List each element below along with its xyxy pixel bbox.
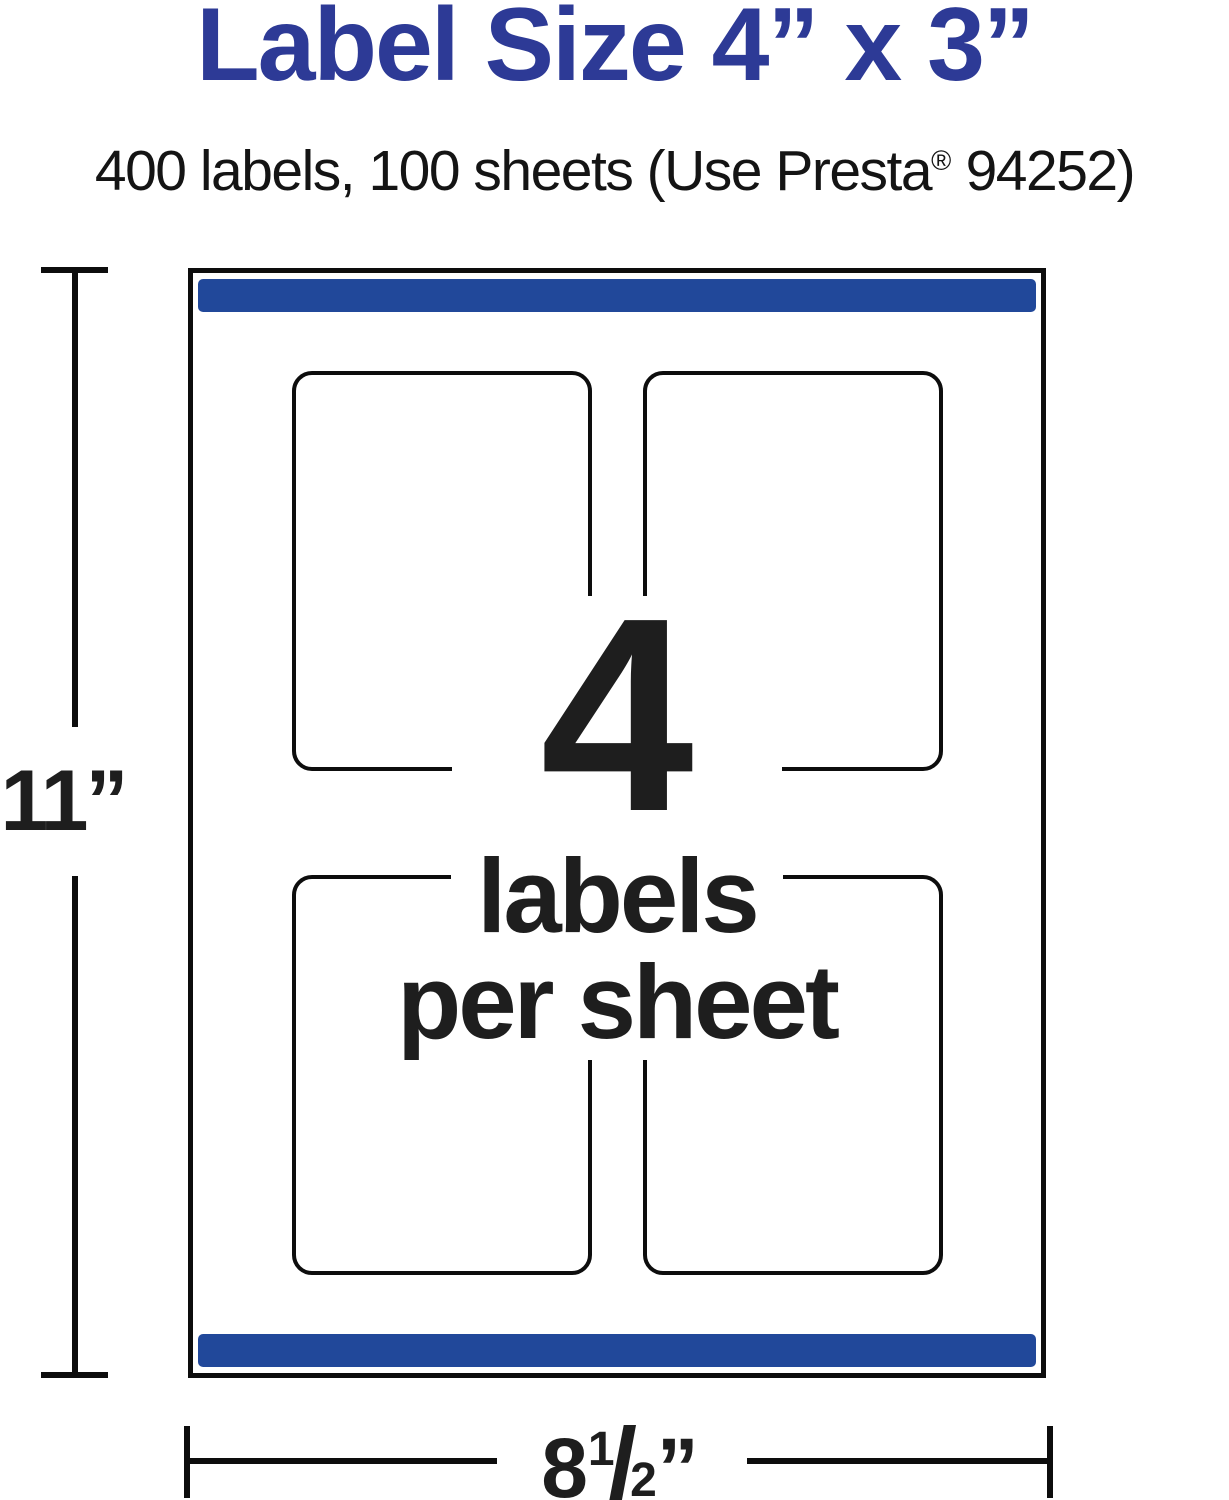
page-title: Label Size 4” x 3” [0, 0, 1229, 100]
labels-count: 4 [452, 596, 782, 834]
width-dim-right-cap [1047, 1426, 1053, 1498]
registered-trademark-symbol: ® [931, 145, 951, 176]
subtitle-sku: 94252) [951, 139, 1134, 203]
width-fraction-denominator: 2 [630, 1454, 657, 1500]
per-sheet-words: per sheet [379, 946, 855, 1060]
width-dim-line-left [187, 1458, 497, 1464]
height-dim-label: 11” [0, 758, 126, 844]
height-dim-bottom-cap [41, 1372, 108, 1378]
height-dim-line-lower [72, 876, 78, 1378]
per-sheet-line: per sheet [188, 946, 1046, 1060]
labels-count-line: 4 [188, 596, 1046, 834]
width-whole-number: 8 [541, 1421, 588, 1500]
subtitle-text: 400 labels, 100 sheets (Use Presta [95, 139, 931, 203]
label-sheet-diagram: Label Size 4” x 3” 400 labels, 100 sheet… [0, 0, 1229, 1500]
labels-word: labels [451, 848, 783, 946]
bottom-accent-bar [198, 1334, 1036, 1367]
height-dim-line-upper [72, 267, 78, 727]
width-unit-mark: ” [657, 1421, 699, 1500]
width-dim-label: 81/2” [480, 1404, 760, 1500]
labels-word-line: labels [188, 848, 1046, 946]
page-subtitle: 400 labels, 100 sheets (Use Presta® 9425… [0, 126, 1229, 206]
top-accent-bar [198, 279, 1036, 312]
width-dim-line-right [747, 1458, 1050, 1464]
